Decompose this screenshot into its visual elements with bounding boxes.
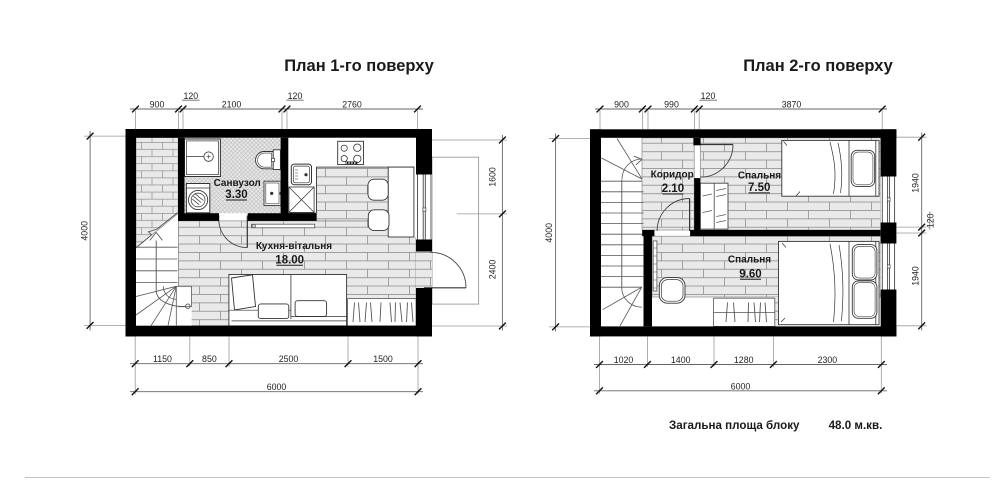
svg-text:1940: 1940 [910,173,920,193]
svg-text:990: 990 [664,100,679,110]
svg-text:4000: 4000 [80,221,90,241]
svg-text:1150: 1150 [153,354,172,364]
svg-text:900: 900 [614,100,629,110]
svg-text:2300: 2300 [818,355,838,365]
svg-text:120: 120 [183,91,198,101]
svg-text:1280: 1280 [734,355,754,365]
svg-text:1020: 1020 [614,355,634,365]
svg-text:3870: 3870 [782,100,802,110]
svg-text:900: 900 [150,100,165,110]
svg-text:1500: 1500 [373,354,393,364]
svg-text:120: 120 [288,91,303,101]
svg-text:48.0 м.кв.: 48.0 м.кв. [829,419,883,432]
svg-text:Загальна площа блоку: Загальна площа блоку [669,419,800,432]
svg-text:9.60: 9.60 [739,268,761,280]
svg-text:850: 850 [202,354,217,364]
svg-text:6000: 6000 [731,381,751,391]
svg-text:2760: 2760 [342,100,362,110]
svg-text:2400: 2400 [488,260,498,280]
svg-text:Спальня: Спальня [738,170,781,181]
svg-text:6000: 6000 [267,382,287,392]
svg-text:Санвузол: Санвузол [214,178,261,189]
svg-text:120: 120 [926,213,936,228]
svg-text:План 1-го поверху: План 1-го поверху [284,57,434,75]
svg-text:План 2-го поверху: План 2-го поверху [743,57,893,75]
svg-text:2500: 2500 [279,354,299,364]
svg-text:7.50: 7.50 [748,182,770,194]
svg-text:1600: 1600 [488,167,498,187]
svg-text:4000: 4000 [544,223,554,243]
svg-text:1400: 1400 [671,355,691,365]
svg-text:2.10: 2.10 [662,183,684,195]
svg-text:Коридор: Коридор [651,169,694,180]
svg-text:120: 120 [701,91,716,101]
svg-text:3.30: 3.30 [225,189,247,201]
svg-text:Спальня: Спальня [728,255,771,266]
svg-text:Кухня-вітальня: Кухня-вітальня [256,241,332,252]
svg-text:1940: 1940 [910,266,920,286]
svg-text:2100: 2100 [222,100,242,110]
